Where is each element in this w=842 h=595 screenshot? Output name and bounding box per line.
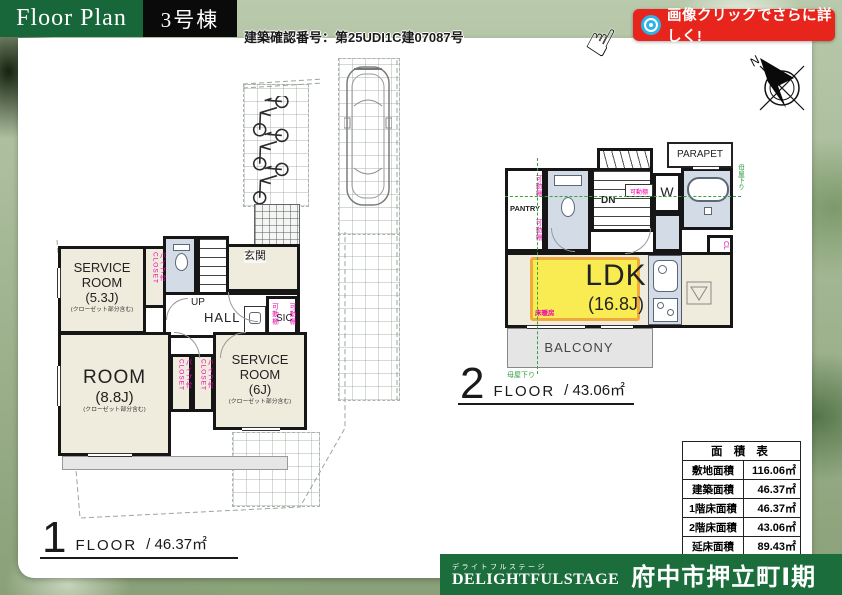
- unit-badge: 3号棟: [143, 0, 237, 37]
- counter-symbol: [686, 281, 712, 305]
- toilet-room-1f: [163, 236, 197, 298]
- bath-window: [693, 166, 719, 170]
- stove-icon: [653, 298, 678, 322]
- area-row-value: 116.06㎡: [744, 461, 801, 480]
- faucet-icon: [658, 265, 667, 274]
- brand-name: DELIGHTFULSTAGE: [452, 572, 619, 588]
- hall-label: HALL: [204, 311, 241, 326]
- click-ripple-icon: [641, 15, 661, 35]
- table-row: 敷地面積116.06㎡: [683, 461, 801, 480]
- click-cta-badge[interactable]: 画像クリックでさらに詳しく!: [633, 9, 835, 41]
- up-label: UP: [191, 297, 205, 309]
- area-table-title: 面 積 表: [683, 442, 801, 461]
- floor2-number: 2: [460, 366, 484, 402]
- area-row-label: 2階床面積: [683, 518, 744, 537]
- ldk-room: 床暖房 LDK (16.8J): [505, 252, 733, 328]
- washer-label: W: [656, 184, 678, 200]
- project-name: 府中市押立町Ⅰ期: [631, 557, 816, 592]
- area-row-value: 46.37㎡: [744, 499, 801, 518]
- floor1-number: 1: [42, 520, 66, 556]
- closet-c: パイプ付CLOSET: [192, 354, 214, 412]
- window: [57, 366, 61, 406]
- kitchen-sink-icon: [653, 260, 678, 292]
- brand-block: デライトフルステージ DELIGHTFULSTAGE: [452, 562, 619, 588]
- terrace-strip: [62, 456, 288, 470]
- driveway-strip: [338, 233, 400, 401]
- window: [57, 268, 61, 298]
- pantry: PANTRY 可動棚 可動棚: [505, 168, 545, 252]
- area-table: 面 積 表 敷地面積116.06㎡ 建築面積46.37㎡ 1階床面積46.37㎡…: [682, 441, 801, 556]
- floor-plan-2: PARAPET PANTRY 可動棚 可動棚 DN 可動棚 W CL R: [505, 140, 745, 376]
- area-row-label: 延床面積: [683, 537, 744, 556]
- balcony-label: BALCONY: [508, 341, 650, 356]
- floor1-caption: 1 FLOOR / 46.37㎡: [40, 520, 238, 559]
- service-room-b-note: (クローゼット部分含む): [220, 398, 299, 405]
- area-row-value: 89.43㎡: [744, 537, 801, 556]
- table-row: 1階床面積46.37㎡: [683, 499, 801, 518]
- area-row-label: 敷地面積: [683, 461, 744, 480]
- burner-icon: [657, 302, 664, 309]
- service-room-a-size: (5.3J): [61, 291, 143, 306]
- flyer-root: Floor Plan 3号棟 建築確認番号：第25UDI1C建07087号 画像…: [0, 0, 842, 595]
- balcony: BALCONY: [507, 328, 653, 368]
- eaves-line: [537, 158, 538, 374]
- car-icon: [344, 64, 392, 208]
- service-room-5-3: SERVICE ROOM (5.3J) (クローゼット部分含む): [58, 246, 146, 334]
- room-8-8: ROOM (8.8J) (クローゼット部分含む): [58, 332, 171, 456]
- floor2-area: / 43.06㎡: [564, 379, 625, 402]
- washroom: [653, 213, 682, 252]
- balcony-window: [601, 325, 633, 329]
- window: [88, 453, 132, 457]
- table-row: 延床面積89.43㎡: [683, 537, 801, 556]
- service-room-a-note: (クローゼット部分含む): [65, 306, 139, 313]
- table-row: 建築面積46.37㎡: [683, 480, 801, 499]
- page-title: Floor Plan: [16, 5, 127, 32]
- bicycle-icons: [236, 96, 308, 204]
- brand-kana: デライトフルステージ: [452, 562, 619, 572]
- staircase-1f: [197, 236, 229, 298]
- area-row-value: 46.37㎡: [744, 480, 801, 499]
- toilet-icon: [561, 197, 575, 217]
- floor-plan-1: 玄関 SERVICE ROOM (5.3J) (クローゼット部分含む) パイプ付…: [58, 198, 314, 474]
- bathroom: [681, 168, 733, 230]
- unit-badge-label: 3号棟: [161, 4, 220, 34]
- entrance-porch: [254, 204, 300, 248]
- closet-c-label: パイプ付CLOSET: [199, 359, 212, 409]
- area-row-label: 建築面積: [683, 480, 744, 499]
- bath-drain: [704, 207, 712, 215]
- toilet-tank-icon: [173, 244, 190, 251]
- floor2-floor-word: FLOOR: [493, 383, 555, 402]
- room-name: ROOM: [61, 367, 168, 389]
- table-row: 2階床面積43.06㎡: [683, 518, 801, 537]
- balcony-window: [527, 325, 585, 329]
- closet-b-label: パイプ付CLOSET: [177, 359, 190, 409]
- area-row-value: 43.06㎡: [744, 518, 801, 537]
- toilet-cabinet: [554, 175, 582, 186]
- floor1-floor-word: FLOOR: [75, 537, 137, 556]
- click-cta-label: 画像クリックでさらに詳しく!: [667, 4, 835, 46]
- washer-space: W: [653, 173, 681, 213]
- toilet-icon: [175, 253, 188, 271]
- kitchen-counter: [648, 255, 682, 325]
- service-room-b-size: (6J): [216, 383, 304, 398]
- service-room-a-name: SERVICE ROOM: [61, 261, 143, 291]
- area-row-label: 1階床面積: [683, 499, 744, 518]
- parapet-box: PARAPET: [667, 142, 733, 168]
- window: [242, 427, 280, 431]
- sic-label: SIC: [276, 313, 293, 325]
- room-size: (8.8J): [61, 389, 168, 406]
- closet-b: パイプ付CLOSET: [170, 354, 192, 412]
- under-stair-shelf: 可動棚: [630, 187, 648, 196]
- burner-icon: [667, 309, 674, 316]
- page-title-box: Floor Plan: [0, 0, 143, 37]
- building-confirmation-number: 建築確認番号：第25UDI1C建07087号: [244, 27, 464, 46]
- bathtub-icon: [687, 177, 729, 202]
- compass-icon: N: [748, 50, 812, 118]
- eaves-label-right: 母屋下り: [736, 164, 743, 190]
- floor1-area: / 46.37㎡: [146, 533, 207, 556]
- entrance-label: 玄関: [244, 250, 266, 263]
- brand-banner: デライトフルステージ DELIGHTFULSTAGE 府中市押立町Ⅰ期: [440, 554, 842, 595]
- floor2-caption: 2 FLOOR / 43.06㎡: [458, 366, 634, 405]
- cl-label: CL: [722, 241, 729, 250]
- eaves-line: [505, 196, 741, 197]
- room-note: (クローゼット部分含む): [66, 406, 162, 413]
- door-arc: [625, 228, 651, 254]
- parapet-label: PARAPET: [669, 149, 731, 161]
